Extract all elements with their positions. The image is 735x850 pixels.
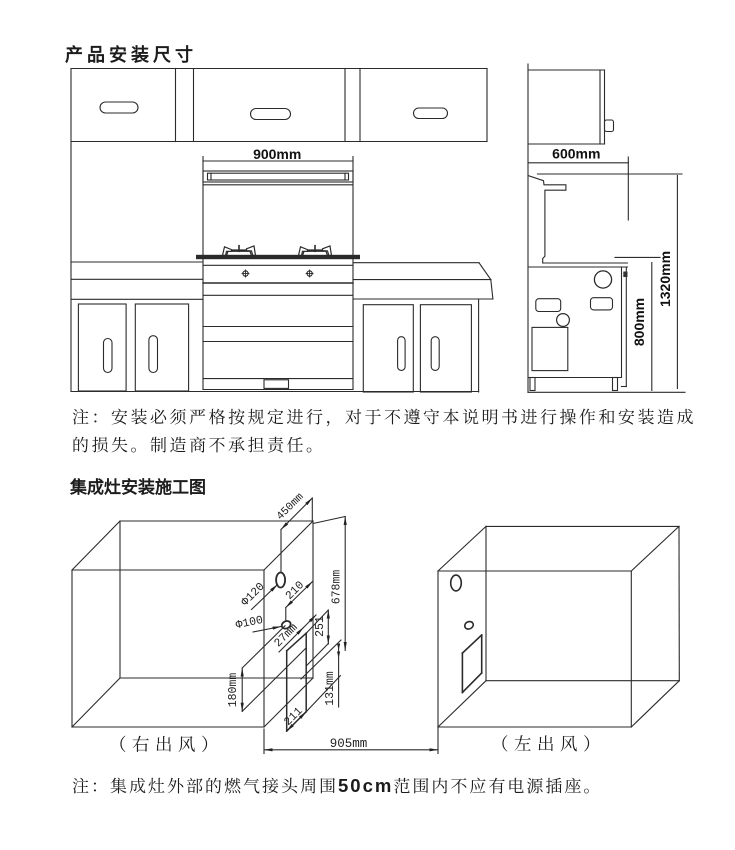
svg-text:800mm: 800mm bbox=[631, 298, 647, 346]
svg-text:1320mm: 1320mm bbox=[657, 251, 673, 307]
svg-text:905mm: 905mm bbox=[330, 737, 368, 751]
svg-text:450mm: 450mm bbox=[275, 491, 307, 523]
svg-text:的损失。制造商不承担责任。: 的损失。制造商不承担责任。 bbox=[72, 436, 326, 455]
svg-text:（右出风）: （右出风） bbox=[109, 735, 224, 755]
svg-text:210: 210 bbox=[283, 579, 307, 603]
svg-text:Φ120: Φ120 bbox=[239, 580, 268, 609]
svg-text:Φ100: Φ100 bbox=[235, 614, 265, 632]
svg-text:27mm: 27mm bbox=[272, 621, 301, 650]
svg-text:注：安装必须严格按规定进行，对于不遵守本说明书进行操作和安装: 注：安装必须严格按规定进行，对于不遵守本说明书进行操作和安装造成 bbox=[72, 408, 696, 427]
svg-text:251: 251 bbox=[314, 616, 327, 637]
svg-text:注：集成灶外部的燃气接头周围50cm范围内不应有电源插座。: 注：集成灶外部的燃气接头周围50cm范围内不应有电源插座。 bbox=[72, 775, 602, 796]
svg-text:131mm: 131mm bbox=[324, 671, 337, 706]
svg-text:900mm: 900mm bbox=[253, 146, 301, 162]
svg-text:产品安装尺寸: 产品安装尺寸 bbox=[65, 44, 197, 65]
svg-text:（左出风）: （左出风） bbox=[491, 734, 606, 754]
svg-text:600mm: 600mm bbox=[552, 146, 600, 162]
svg-text:678mm: 678mm bbox=[331, 570, 344, 605]
svg-text:211: 211 bbox=[282, 705, 306, 729]
svg-text:180mm: 180mm bbox=[227, 673, 240, 708]
svg-text:集成灶安装施工图: 集成灶安装施工图 bbox=[69, 477, 206, 497]
